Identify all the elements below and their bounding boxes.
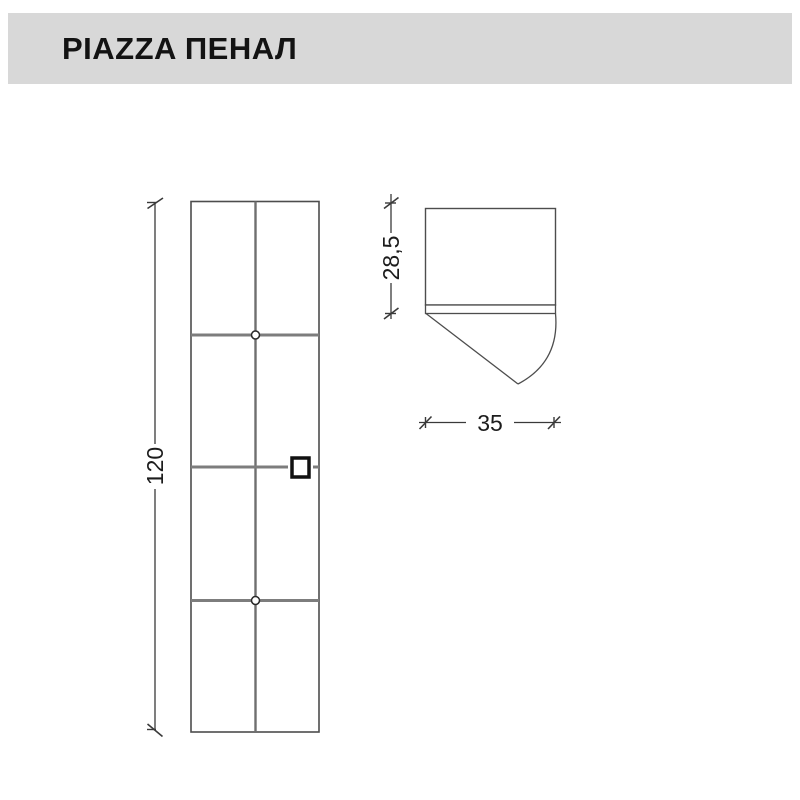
carcass-plan-outline — [426, 209, 556, 306]
front-view — [191, 202, 319, 733]
dimension-width: 35 — [419, 410, 561, 436]
door-handle-icon — [292, 458, 309, 477]
dim-width-label: 35 — [477, 410, 503, 436]
technical-drawing: 120 28,5 — [0, 0, 800, 800]
knob-bottom-icon — [252, 597, 260, 605]
knob-top-icon — [252, 331, 260, 339]
dim-depth-label: 28,5 — [378, 236, 404, 281]
dim-height-label: 120 — [142, 447, 168, 485]
page: PIAZZA ПЕНАЛ — [0, 0, 800, 800]
door-open-line — [426, 314, 518, 385]
door-front-panel — [426, 305, 556, 314]
dimension-height: 120 — [142, 198, 168, 737]
door-swing-arc — [518, 314, 556, 385]
dimension-depth: 28,5 — [378, 194, 404, 319]
plan-view — [426, 209, 556, 385]
